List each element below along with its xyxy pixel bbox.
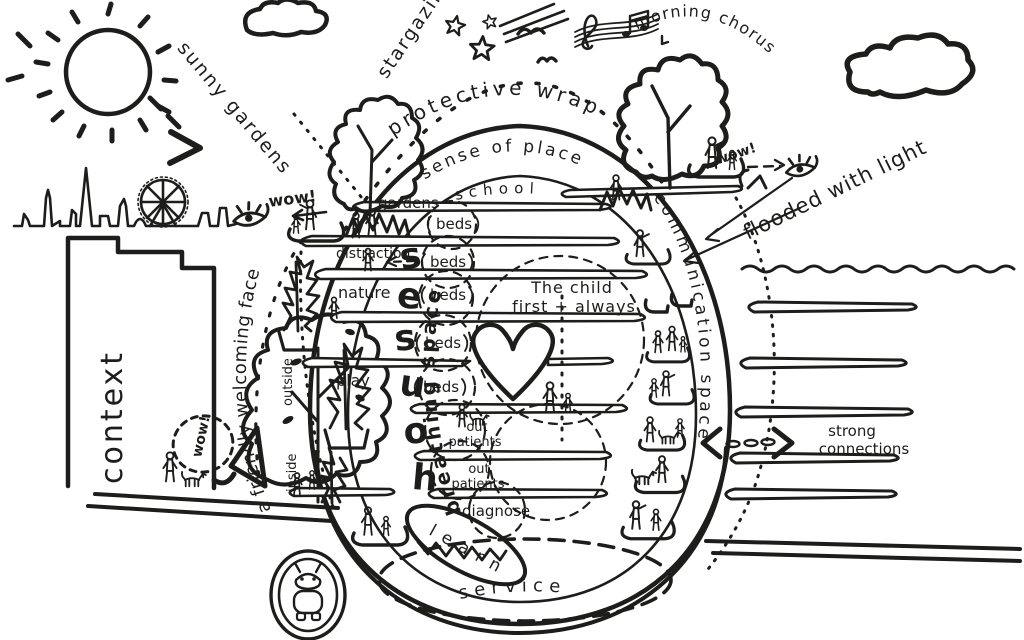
svg-text:beds: beds bbox=[423, 378, 459, 396]
dog-icon bbox=[632, 470, 656, 484]
svg-text:The child: The child bbox=[530, 278, 613, 297]
eye-icon bbox=[231, 200, 270, 227]
context-label: context bbox=[95, 350, 130, 484]
outside-label: outside bbox=[281, 358, 296, 406]
person-icon bbox=[382, 516, 391, 535]
concept-sketch-canvas: stargazing morning chorus sunny gardens … bbox=[0, 0, 1024, 640]
person-icon bbox=[653, 331, 663, 352]
svg-text:patients: patients bbox=[448, 435, 501, 450]
stargazing-label: stargazing bbox=[372, 0, 457, 82]
svg-text:strong: strong bbox=[828, 422, 876, 440]
flooded-with-light-label: flooded with light bbox=[739, 135, 930, 245]
svg-text:beds: beds bbox=[425, 334, 461, 352]
svg-text:beds: beds bbox=[436, 215, 472, 233]
london-eye-icon bbox=[138, 177, 188, 227]
person-icon bbox=[676, 419, 684, 437]
person-icon bbox=[667, 326, 678, 350]
balcony bbox=[626, 250, 670, 264]
dog-icon bbox=[182, 472, 206, 486]
svg-text:o: o bbox=[401, 410, 430, 453]
svg-text:out: out bbox=[468, 462, 489, 477]
out-patients-label: out patients bbox=[448, 420, 501, 450]
wavy-line bbox=[742, 266, 1014, 272]
stars-shooting-star bbox=[444, 4, 568, 60]
person-icon bbox=[634, 230, 648, 256]
sun-icon bbox=[8, 4, 176, 141]
svg-text:e: e bbox=[395, 275, 424, 319]
strong-connections-label: strong connections bbox=[819, 422, 910, 458]
person-icon bbox=[680, 337, 687, 352]
morning-chorus-label: morning chorus bbox=[631, 1, 781, 57]
svg-text:beds: beds bbox=[430, 286, 466, 304]
right-floor-slabs bbox=[726, 302, 916, 499]
person-icon bbox=[656, 456, 668, 482]
sun-arrow-icon bbox=[150, 98, 200, 163]
svg-text:learn: learn bbox=[426, 521, 513, 581]
wrap-tick-arc bbox=[335, 83, 668, 245]
roof-wow-arrow bbox=[748, 160, 784, 170]
person-icon bbox=[661, 371, 675, 395]
empty-hooks bbox=[645, 294, 692, 312]
svg-text:patients: patients bbox=[451, 477, 504, 492]
svg-text:out: out bbox=[466, 420, 487, 435]
sunny-gardens-label: sunny gardens bbox=[173, 37, 297, 178]
london-skyline-icon bbox=[14, 168, 236, 227]
motto-text: The child first + always bbox=[512, 278, 636, 316]
school-label: school bbox=[453, 179, 540, 204]
ground-lines bbox=[88, 494, 338, 521]
out-patients-label: out patients bbox=[451, 462, 504, 492]
diagonal-dotted bbox=[294, 114, 362, 198]
oak-tree-right-icon bbox=[618, 56, 728, 188]
bird-icon bbox=[518, 29, 556, 62]
cloud-icon bbox=[245, 0, 973, 97]
svg-text:connections: connections bbox=[819, 440, 910, 458]
person-icon bbox=[651, 509, 661, 530]
bottom-right-double-line bbox=[706, 541, 1020, 561]
svg-text:h: h bbox=[410, 457, 439, 500]
svg-text:s: s bbox=[393, 317, 418, 360]
robot-mascot-icon bbox=[271, 551, 345, 639]
person-icon bbox=[644, 417, 655, 441]
svg-text:beds: beds bbox=[430, 253, 466, 271]
hand-drawn-diagram: stargazing morning chorus sunny gardens … bbox=[0, 0, 1024, 640]
person-icon bbox=[630, 501, 645, 529]
heart-icon bbox=[473, 325, 553, 399]
svg-text:first + always: first + always bbox=[512, 297, 636, 316]
person-icon bbox=[650, 379, 658, 397]
balcony bbox=[635, 476, 684, 492]
shooting-star-icon bbox=[500, 4, 568, 42]
eye-icon bbox=[784, 152, 820, 178]
nature-label: nature bbox=[338, 283, 390, 302]
wow-path-label: wow! bbox=[189, 415, 213, 459]
